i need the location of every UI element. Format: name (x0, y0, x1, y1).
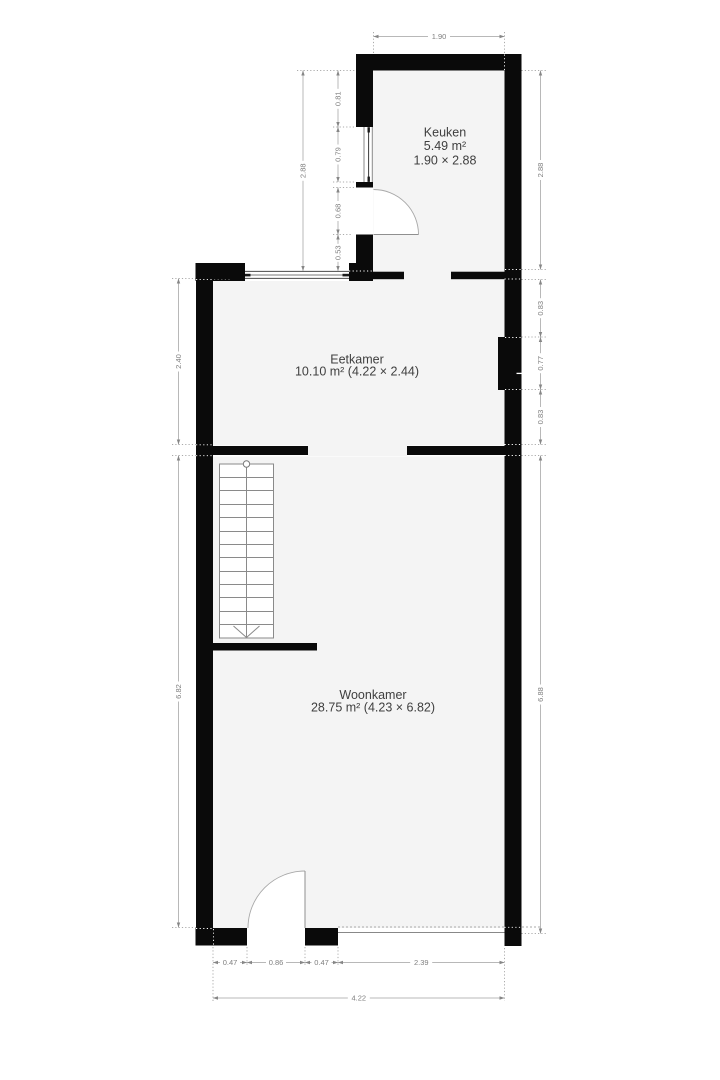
svg-text:0.83: 0.83 (536, 301, 545, 316)
svg-text:2.88: 2.88 (299, 163, 308, 178)
svg-text:2.40: 2.40 (174, 354, 183, 369)
svg-text:28.75 m² (4.23 × 6.82): 28.75 m² (4.23 × 6.82) (311, 701, 435, 715)
svg-text:0.47: 0.47 (314, 958, 329, 967)
svg-text:1.90 × 2.88: 1.90 × 2.88 (414, 154, 477, 168)
svg-text:Keuken: Keuken (424, 126, 466, 140)
svg-text:0.53: 0.53 (334, 245, 343, 260)
svg-text:0.68: 0.68 (334, 204, 343, 219)
svg-text:5.49 m²: 5.49 m² (424, 139, 466, 153)
svg-text:2.39: 2.39 (414, 958, 429, 967)
svg-text:10.10 m² (4.22 × 2.44): 10.10 m² (4.22 × 2.44) (295, 365, 419, 379)
svg-text:2.88: 2.88 (536, 163, 545, 178)
svg-text:4.22: 4.22 (351, 994, 366, 1003)
svg-text:6.82: 6.82 (174, 684, 183, 699)
svg-text:0.86: 0.86 (269, 958, 284, 967)
svg-text:0.79: 0.79 (334, 147, 343, 162)
svg-text:1.90: 1.90 (432, 32, 447, 41)
svg-text:6.88: 6.88 (536, 687, 545, 702)
svg-text:0.83: 0.83 (536, 410, 545, 425)
svg-text:0.81: 0.81 (334, 91, 343, 106)
svg-text:0.47: 0.47 (223, 958, 238, 967)
svg-text:0.77: 0.77 (536, 356, 545, 371)
